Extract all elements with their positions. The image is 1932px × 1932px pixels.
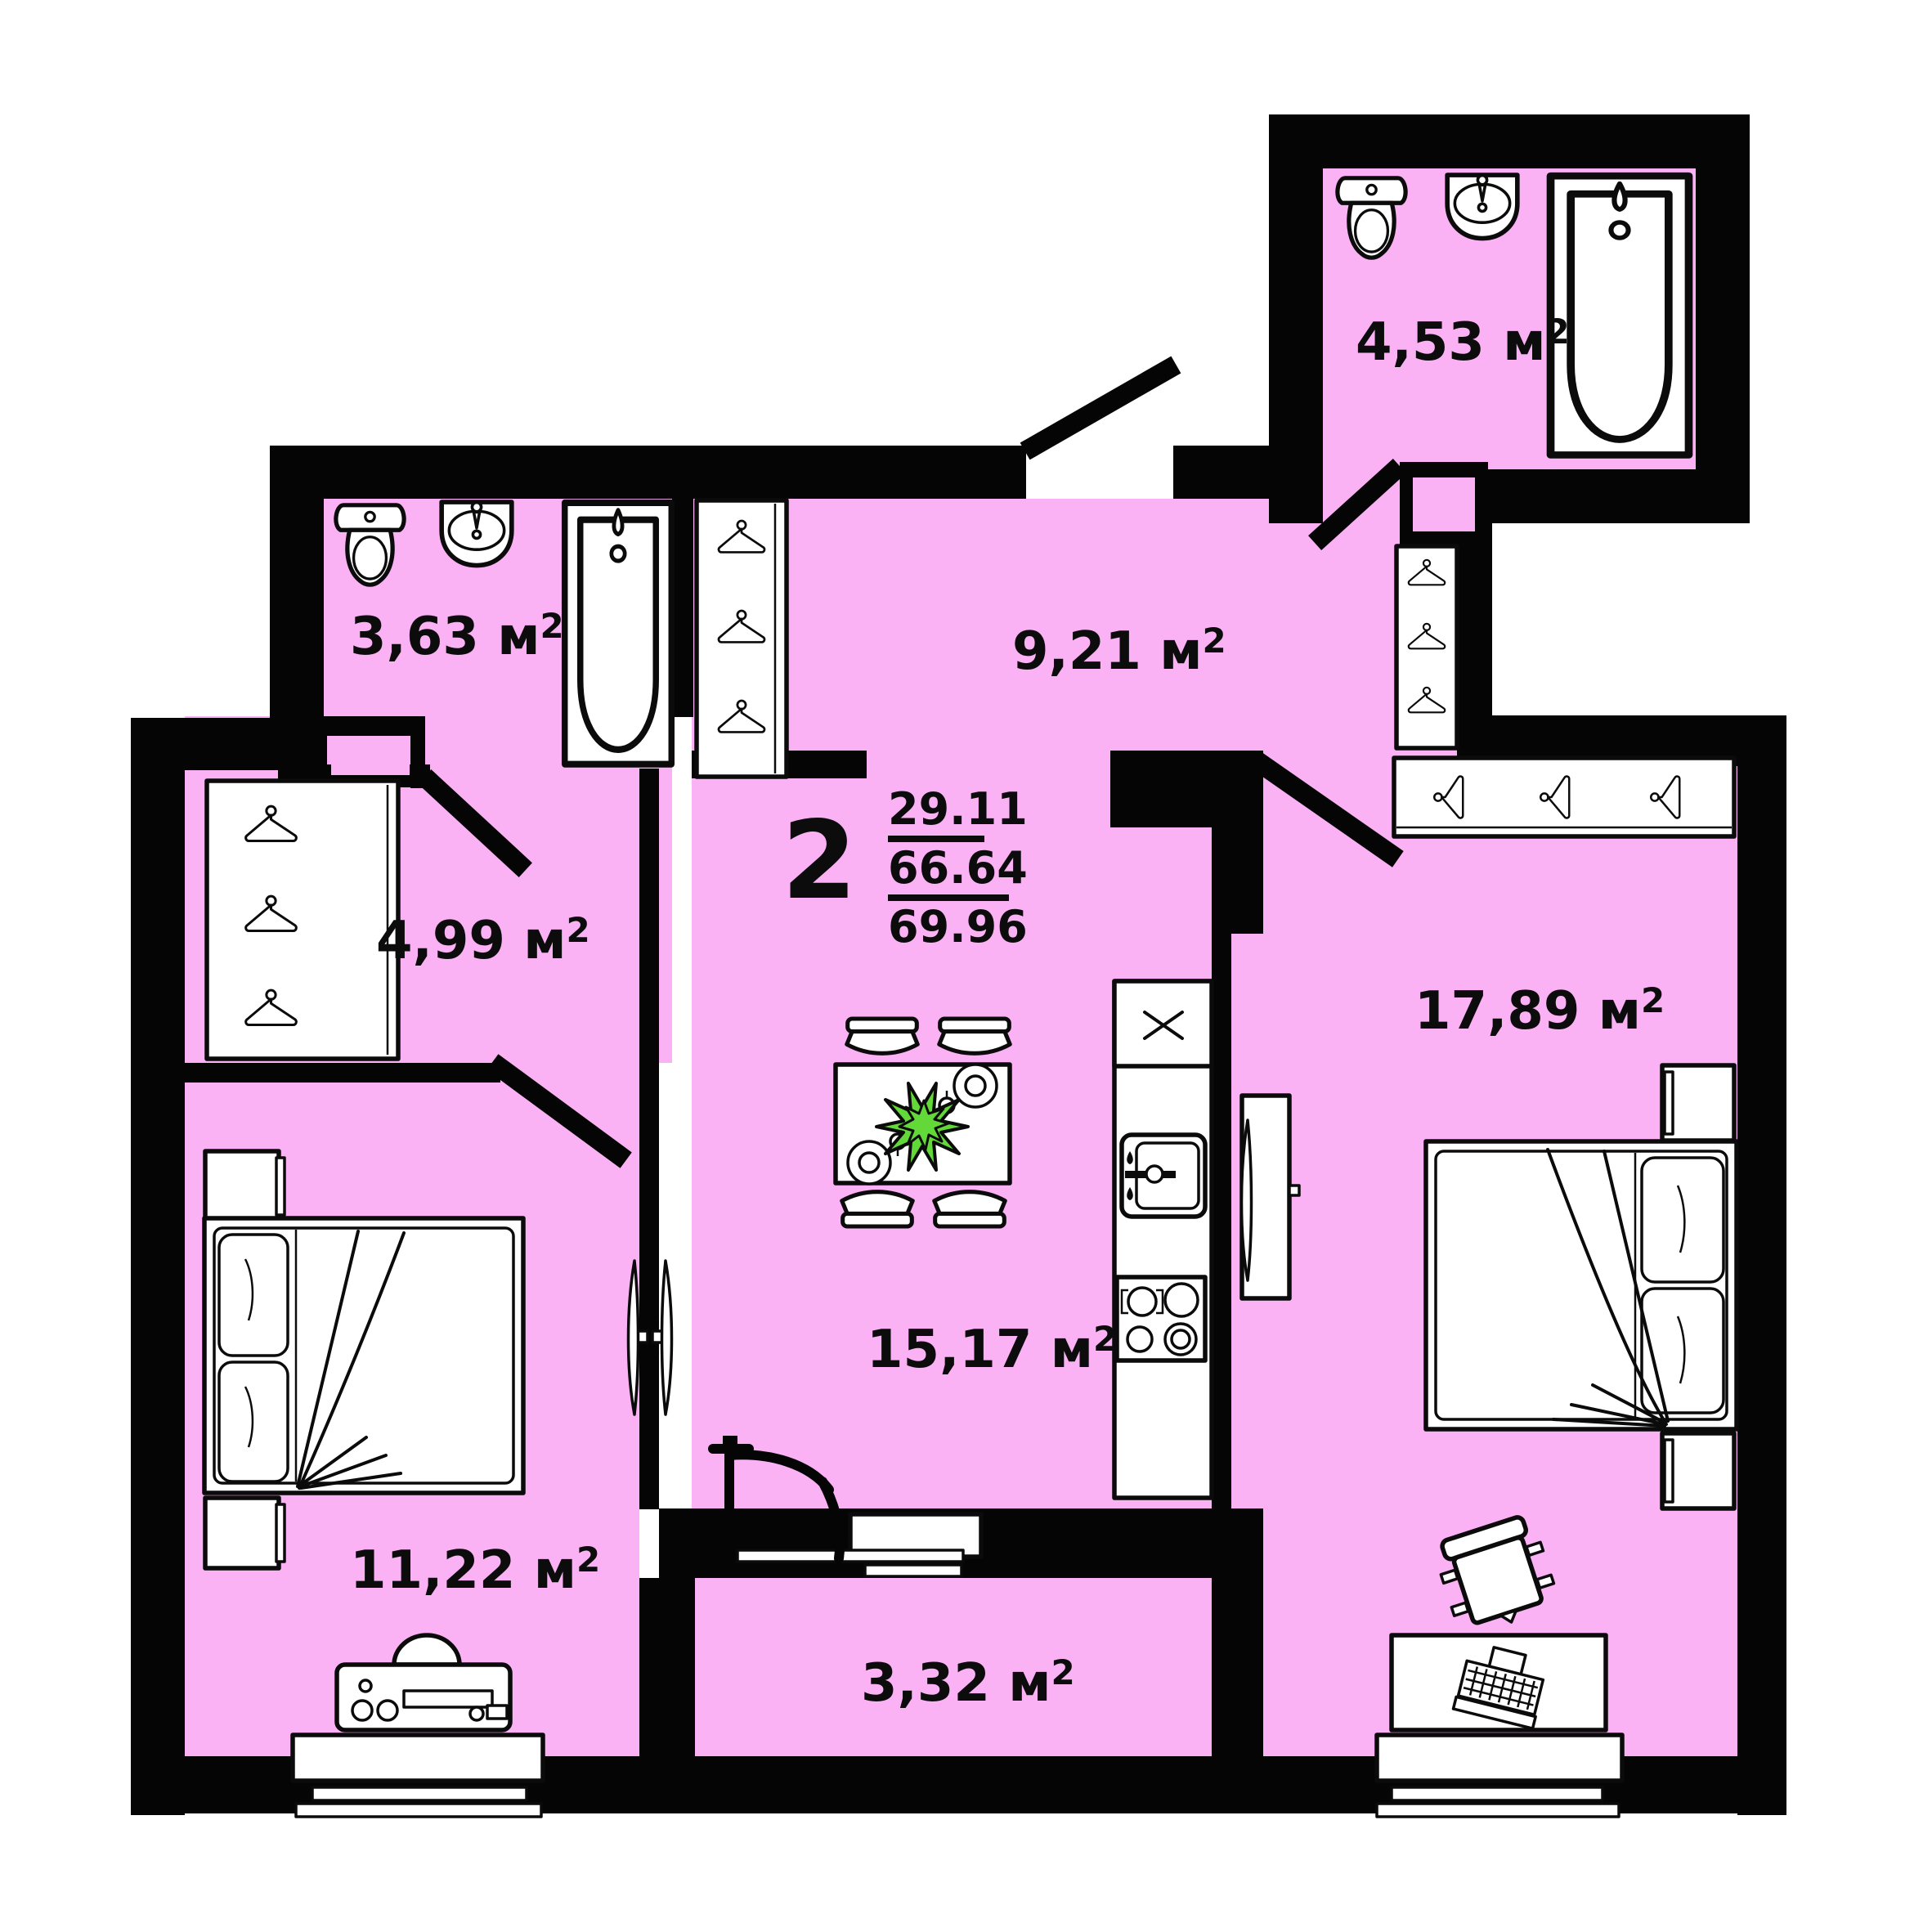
- window: [293, 1735, 543, 1781]
- nightstand: [205, 1498, 279, 1568]
- nightstand: [205, 1151, 279, 1222]
- chair: [935, 1192, 1005, 1226]
- room-label-kitchen: 15,17 м2: [867, 1319, 1117, 1380]
- wall: [1269, 114, 1323, 523]
- bathtub-icon: [565, 503, 672, 764]
- bed: [204, 1218, 523, 1493]
- wall: [639, 769, 659, 1509]
- room-label-balcony: 3,32 м2: [861, 1652, 1075, 1714]
- hallway-wardrobe: [697, 500, 787, 777]
- tv-cabinet: [1242, 1096, 1300, 1298]
- kitchen-furniture: [1114, 981, 1212, 1498]
- duct-shaft: [1413, 477, 1475, 531]
- wall: [410, 716, 425, 788]
- total-area-value: 69.96: [888, 901, 1028, 953]
- entrance-door-leaf: [1033, 370, 1168, 446]
- pillow: [1642, 1158, 1724, 1282]
- chair: [842, 1192, 912, 1226]
- underline: [888, 894, 1009, 901]
- wall: [324, 716, 410, 736]
- window-sill: [312, 1787, 527, 1800]
- pillow: [1642, 1289, 1724, 1413]
- bedroom-left-window: [293, 1735, 543, 1817]
- wall: [1212, 826, 1263, 934]
- chair: [847, 1019, 917, 1053]
- room-label-corridor: 4,99 м2: [376, 910, 590, 971]
- window-sill: [1392, 1787, 1603, 1800]
- wall: [270, 446, 324, 728]
- chair: [939, 1019, 1010, 1053]
- sink-icon: [442, 502, 512, 566]
- floor-plan-svg: 4,53 м2 3,63 м2 9,21 м2 4,99 м2 17,89 м2…: [0, 0, 1932, 1932]
- bathtub-icon: [1551, 176, 1689, 455]
- wall: [1737, 715, 1786, 1815]
- duct-shaft: [331, 737, 410, 775]
- stove-icon: [1117, 1277, 1205, 1360]
- desk: [1392, 1635, 1606, 1730]
- wall: [1212, 934, 1231, 1509]
- tv-icon: [629, 1261, 639, 1414]
- wall: [672, 446, 693, 717]
- room-label-bathroom-top-left: 3,63 м2: [350, 606, 564, 667]
- tv-icon: [662, 1261, 672, 1414]
- rooms-count: 2: [782, 798, 857, 924]
- window-sill: [1377, 1804, 1619, 1817]
- window-sill: [865, 1565, 962, 1576]
- tv-icon: [1242, 1120, 1252, 1280]
- hallway-niche-wardrobe: [1396, 546, 1457, 748]
- room-label-bedroom-left: 11,22 м2: [350, 1540, 600, 1601]
- bed: [1426, 1141, 1737, 1429]
- wall: [1110, 751, 1263, 827]
- floor-plan-page: 4,53 м2 3,63 м2 9,21 м2 4,99 м2 17,89 м2…: [0, 0, 1932, 1932]
- wall: [185, 1063, 500, 1083]
- apartment-area-value: 66.64: [888, 842, 1028, 894]
- underline: [888, 836, 984, 842]
- window-sill: [296, 1804, 541, 1817]
- room-label-hallway: 9,21 м2: [1012, 621, 1226, 682]
- kitchen-sink-icon: [1122, 1135, 1205, 1217]
- bedroom-right-window: [1377, 1735, 1622, 1817]
- corridor-wardrobe: [207, 781, 398, 1059]
- wall: [1457, 523, 1492, 717]
- wardrobe: [1394, 758, 1734, 836]
- wall: [131, 718, 185, 1815]
- room-label-bathroom-top-right: 4,53 м2: [1356, 312, 1570, 373]
- window: [1377, 1735, 1622, 1781]
- wall: [270, 446, 1026, 499]
- sink-icon: [1447, 175, 1517, 239]
- wall: [1173, 446, 1271, 499]
- wall: [1269, 114, 1750, 168]
- room-label-bedroom-right: 17,89 м2: [1414, 980, 1665, 1042]
- wall: [1696, 114, 1750, 523]
- living-area-value: 29.11: [888, 783, 1028, 835]
- window-sill: [737, 1550, 963, 1562]
